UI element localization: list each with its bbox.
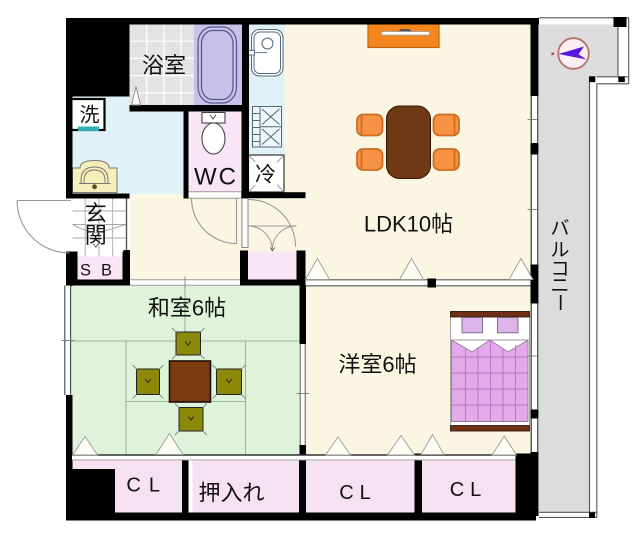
svg-text:関: 関 <box>85 223 107 248</box>
svg-text:バ: バ <box>550 219 569 240</box>
svg-text:冷: 冷 <box>255 164 276 187</box>
svg-text:洋室6帖: 洋室6帖 <box>338 352 416 377</box>
svg-text:押入れ: 押入れ <box>198 481 264 506</box>
svg-text:ル: ル <box>550 240 569 261</box>
svg-text:洗: 洗 <box>80 104 100 127</box>
svg-text:浴室: 浴室 <box>142 53 186 78</box>
svg-text:SB: SB <box>80 262 122 280</box>
svg-text:和室6帖: 和室6帖 <box>148 296 226 321</box>
svg-text:CL: CL <box>126 475 168 497</box>
svg-text:CL: CL <box>450 479 488 501</box>
svg-text:WC: WC <box>194 164 238 191</box>
svg-text:ー: ー <box>549 293 570 312</box>
svg-text:CL: CL <box>339 482 377 504</box>
svg-text:LDK10帖: LDK10帖 <box>364 212 453 237</box>
